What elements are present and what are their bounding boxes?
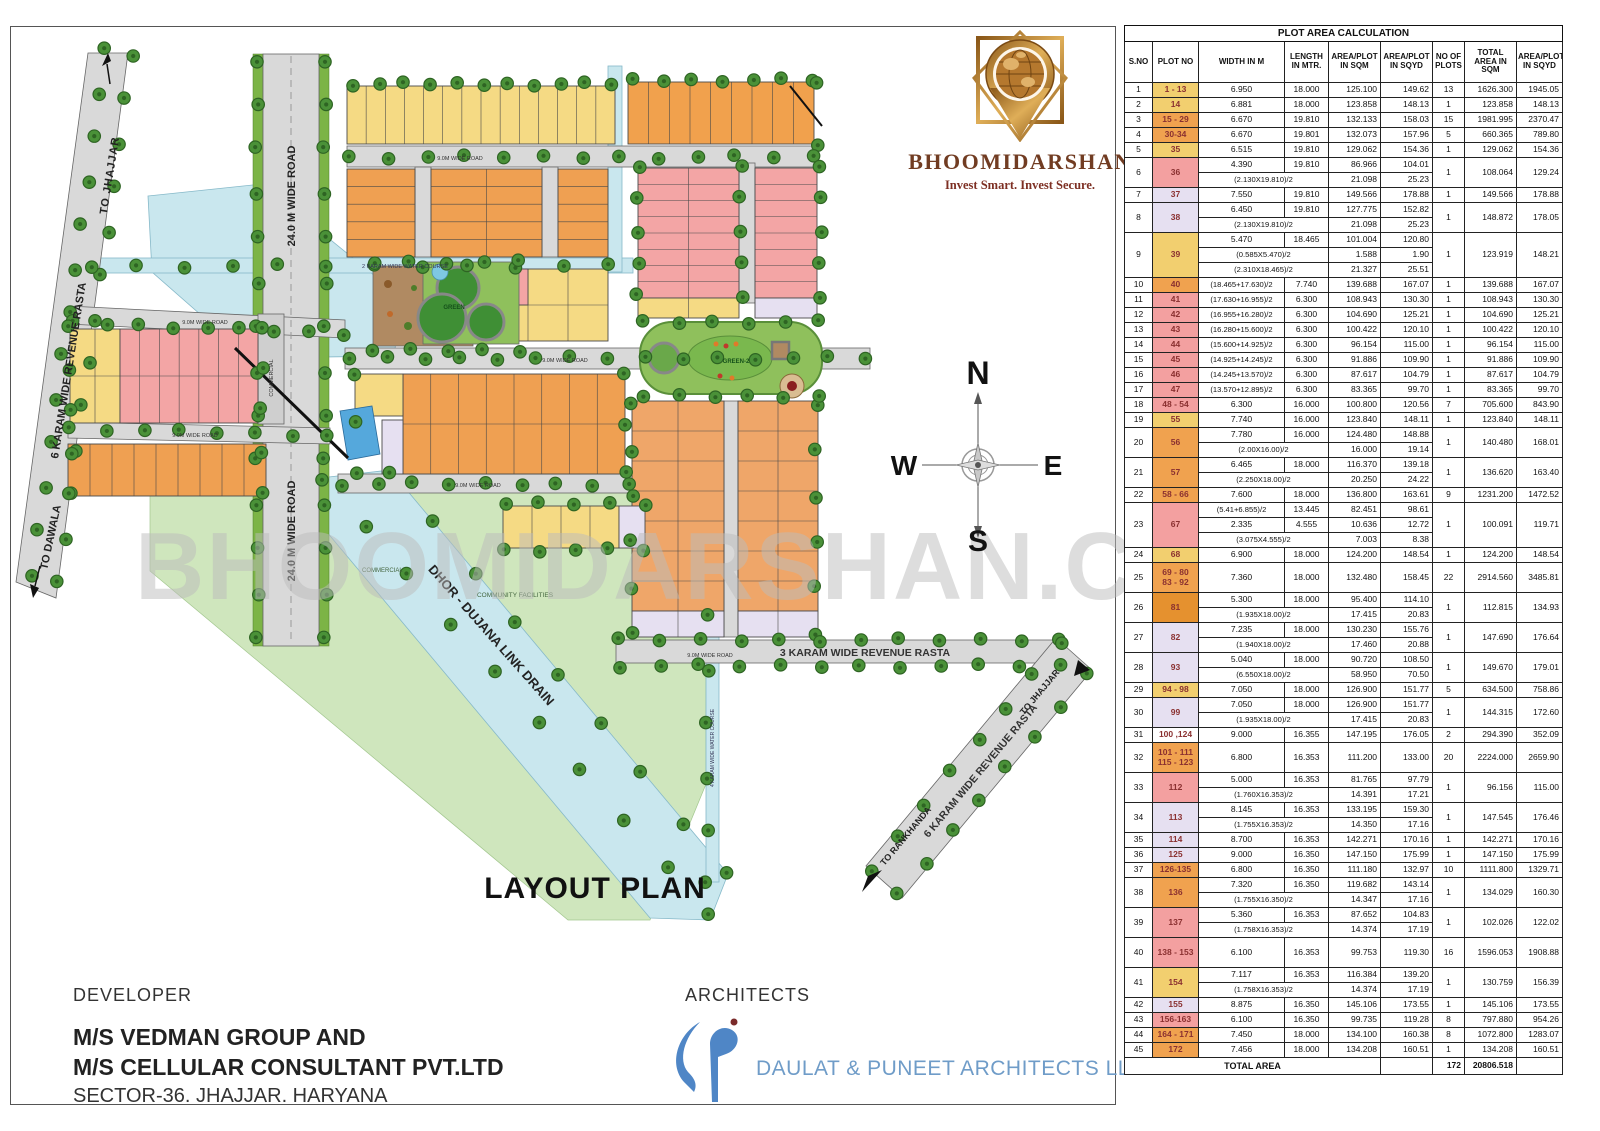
total-area-sqm-cell: 140.480 (1465, 428, 1517, 458)
width-formula-cell: (1.940X18.00)/2 (1199, 638, 1329, 653)
length-cell: 19.810 (1285, 143, 1329, 158)
total-area-sqyd-cell: 129.24 (1517, 158, 1563, 188)
total-area-sqm-cell: 142.271 (1465, 833, 1517, 848)
no-of-plots-cell: 1 (1433, 413, 1465, 428)
table-row: 391375.36016.35387.652104.831102.026122.… (1125, 908, 1563, 923)
total-area-sqyd-cell: 134.93 (1517, 593, 1563, 623)
area-sqyd-cell: 159.30 (1381, 803, 1433, 818)
area-sqyd-cell: 99.70 (1381, 383, 1433, 398)
no-of-plots-cell: 1 (1433, 323, 1465, 338)
width-cell: 8.875 (1199, 998, 1285, 1013)
table-row: 315 - 296.67019.810132.133158.03151981.9… (1125, 113, 1563, 128)
area-sqm-cell: 100.422 (1329, 323, 1381, 338)
total-area-sqm-cell: 136.620 (1465, 458, 1517, 488)
area-sqyd-cell: 109.90 (1381, 353, 1433, 368)
no-of-plots-cell: 1 (1433, 278, 1465, 293)
compass-rose: N S W E (888, 352, 1068, 552)
no-of-plots-cell: 2 (1433, 728, 1465, 743)
plot-no-cell: 155 (1153, 998, 1199, 1013)
sno-cell: 13 (1125, 323, 1153, 338)
table-row: 1747(13.570+12.895)/26.30083.36599.70183… (1125, 383, 1563, 398)
total-area-sqyd-cell: 176.46 (1517, 803, 1563, 833)
column-header: LENGTH IN MTR. (1285, 42, 1329, 83)
table-row: 21576.46518.000116.370139.181136.620163.… (1125, 458, 1563, 473)
total-area-sqm-cell: 129.062 (1465, 143, 1517, 158)
plot-no-cell: 156-163 (1153, 1013, 1199, 1028)
label-green1: GREEN (443, 305, 464, 311)
table-row: 28935.04018.00090.720108.501149.670179.0… (1125, 653, 1563, 668)
table-row: 37126-1356.80016.350111.180132.97101111.… (1125, 863, 1563, 878)
area-sqyd-cell: 163.61 (1381, 488, 1433, 503)
area-sqm-cell: 21.327 (1329, 263, 1381, 278)
total-area-sqm-cell: 124.200 (1465, 548, 1517, 563)
length-cell: 18.000 (1285, 698, 1329, 713)
plot-no-cell: 14 (1153, 98, 1199, 113)
area-sqyd-cell: 70.50 (1381, 668, 1433, 683)
area-sqyd-cell: 24.22 (1381, 473, 1433, 488)
no-of-plots-cell: 1 (1433, 803, 1465, 833)
total-area-sqm-cell: 797.880 (1465, 1013, 1517, 1028)
width-cell: 7.600 (1199, 488, 1285, 503)
brand-name: BHOOMIDARSHAN (900, 149, 1140, 175)
width-cell: 6.100 (1199, 938, 1285, 968)
plot-no-cell: 82 (1153, 623, 1199, 653)
table-title: PLOT AREA CALCULATION (1125, 26, 1563, 42)
no-of-plots-cell: 15 (1433, 113, 1465, 128)
no-of-plots-cell: 8 (1433, 1028, 1465, 1043)
total-area-sqyd-cell: 167.07 (1517, 278, 1563, 293)
total-area-sqyd-cell: 163.40 (1517, 458, 1563, 488)
sno-cell: 41 (1125, 968, 1153, 998)
area-sqyd-cell: 167.07 (1381, 278, 1433, 293)
sno-cell: 42 (1125, 998, 1153, 1013)
area-sqm-cell: 83.365 (1329, 383, 1381, 398)
total-area-sqyd-cell: 156.39 (1517, 968, 1563, 998)
width-formula-cell: (2.250X18.00)/2 (1199, 473, 1329, 488)
sno-cell: 5 (1125, 143, 1153, 158)
plot-block (755, 298, 817, 318)
table-row: 5356.51519.810129.062154.361129.062154.3… (1125, 143, 1563, 158)
width-cell: (16.280+15.600)/2 (1199, 323, 1285, 338)
total-area-sqm-cell: 104.690 (1465, 308, 1517, 323)
total-area-sqm-cell: 2914.560 (1465, 563, 1517, 593)
label-road-9m-6: 9.0M WIDE ROAD (687, 653, 733, 659)
width-formula-cell: (1.935X18.00)/2 (1199, 713, 1329, 728)
area-sqm-cell: 20.250 (1329, 473, 1381, 488)
total-area-sqyd-cell: 130.30 (1517, 293, 1563, 308)
no-of-plots-cell: 1 (1433, 158, 1465, 188)
compass-w: W (891, 450, 918, 481)
length-cell: 16.353 (1285, 803, 1329, 818)
label-road-9m-3: 9.0M WIDE ROAD (542, 358, 588, 364)
total-area-sqm-cell: 1626.300 (1465, 83, 1517, 98)
width-cell: 6.515 (1199, 143, 1285, 158)
width-cell: 7.450 (1199, 1028, 1285, 1043)
plot-no-cell: 58 - 66 (1153, 488, 1199, 503)
no-of-plots-cell: 1 (1433, 653, 1465, 683)
plot-no-cell: 69 - 80 83 - 92 (1153, 563, 1199, 593)
plot-no-cell: 137 (1153, 908, 1199, 938)
area-sqyd-cell: 8.38 (1381, 533, 1433, 548)
no-of-plots-cell: 22 (1433, 563, 1465, 593)
area-sqm-cell: 16.000 (1329, 443, 1381, 458)
area-sqm-cell: 14.391 (1329, 788, 1381, 803)
plot-no-cell: 45 (1153, 353, 1199, 368)
width-cell: 9.000 (1199, 848, 1285, 863)
sno-cell: 10 (1125, 278, 1153, 293)
width-cell: (16.955+16.280)/2 (1199, 308, 1285, 323)
total-area-sqm-cell: 83.365 (1465, 383, 1517, 398)
no-of-plots-cell: 1 (1433, 338, 1465, 353)
width-cell: 6.900 (1199, 548, 1285, 563)
area-sqm-cell: 17.460 (1329, 638, 1381, 653)
width-cell: (5.41+6.855)/2 (1199, 503, 1285, 518)
plot-no-cell: 40 (1153, 278, 1199, 293)
sno-cell: 39 (1125, 908, 1153, 938)
area-sqyd-cell: 148.11 (1381, 413, 1433, 428)
plot-no-cell: 48 - 54 (1153, 398, 1199, 413)
label-commercial-v: COMMERCIAL (269, 359, 275, 396)
plot-no-cell: 126-135 (1153, 863, 1199, 878)
length-cell: 19.810 (1285, 113, 1329, 128)
area-sqm-cell: 95.400 (1329, 593, 1381, 608)
table-row: 44164 - 1717.45018.000134.100160.3881072… (1125, 1028, 1563, 1043)
total-area-sqyd-cell: 954.26 (1517, 1013, 1563, 1028)
plot-no-cell: 56 (1153, 428, 1199, 458)
length-cell: 6.300 (1285, 323, 1329, 338)
width-formula-cell: (3.075X4.555)/2 (1199, 533, 1329, 548)
area-sqyd-cell: 97.79 (1381, 773, 1433, 788)
sno-cell: 24 (1125, 548, 1153, 563)
area-sqm-cell: 104.690 (1329, 308, 1381, 323)
total-area-sqyd-cell: 179.01 (1517, 653, 1563, 683)
width-formula-cell: (2.00X16.00)/2 (1199, 443, 1329, 458)
no-of-plots-cell: 8 (1433, 1013, 1465, 1028)
column-header: WIDTH IN M (1199, 42, 1285, 83)
area-sqm-cell: 17.415 (1329, 608, 1381, 623)
length-cell: 18.000 (1285, 1043, 1329, 1058)
area-sqyd-cell: 120.10 (1381, 323, 1433, 338)
no-of-plots-cell: 10 (1433, 863, 1465, 878)
length-cell: 19.810 (1285, 188, 1329, 203)
area-sqyd-cell: 148.88 (1381, 428, 1433, 443)
plot-no-cell: 100 ,124 (1153, 728, 1199, 743)
area-sqm-cell: 124.200 (1329, 548, 1381, 563)
plot-no-cell: 38 (1153, 203, 1199, 233)
total-area-sqyd-cell: 2370.47 (1517, 113, 1563, 128)
area-sqyd-cell: 25.51 (1381, 263, 1433, 278)
width-cell: 8.145 (1199, 803, 1285, 818)
area-sqm-cell: 81.765 (1329, 773, 1381, 788)
total-area-sqm-cell: 149.566 (1465, 188, 1517, 203)
length-cell: 16.000 (1285, 428, 1329, 443)
area-sqyd-cell: 119.28 (1381, 1013, 1433, 1028)
plot-no-cell: 68 (1153, 548, 1199, 563)
area-sqm-cell: 126.900 (1329, 698, 1381, 713)
plot-no-cell: 46 (1153, 368, 1199, 383)
sno-cell: 16 (1125, 368, 1153, 383)
width-cell: 7.320 (1199, 878, 1285, 893)
total-area-sqyd-cell: 1329.71 (1517, 863, 1563, 878)
total-area-sqyd-cell: 120.10 (1517, 323, 1563, 338)
plot-no-cell: 101 - 111 115 - 123 (1153, 743, 1199, 773)
empty-cell (1381, 1058, 1433, 1075)
area-sqm-cell: 116.370 (1329, 458, 1381, 473)
area-sqm-cell: 7.003 (1329, 533, 1381, 548)
length-cell: 18.000 (1285, 488, 1329, 503)
no-of-plots-cell: 1 (1433, 203, 1465, 233)
plot-no-cell: 57 (1153, 458, 1199, 488)
width-cell: 7.780 (1199, 428, 1285, 443)
total-area-sqm-cell: 147.545 (1465, 803, 1517, 833)
compass-e: E (1044, 450, 1063, 481)
total-area-sqyd-cell: 160.30 (1517, 878, 1563, 908)
label-road-9m-4: 9.0M WIDE ROAD (172, 433, 218, 439)
length-cell: 16.355 (1285, 728, 1329, 743)
sno-cell: 7 (1125, 188, 1153, 203)
column-header: PLOT NO (1153, 42, 1199, 83)
area-sqyd-cell: 143.14 (1381, 878, 1433, 893)
plot-no-cell: 37 (1153, 188, 1199, 203)
plot-no-cell: 99 (1153, 698, 1199, 728)
total-area-sqyd-cell: 1908.88 (1517, 938, 1563, 968)
width-cell: 6.300 (1199, 398, 1285, 413)
area-sqm-cell: 91.886 (1329, 353, 1381, 368)
width-cell: (17.630+16.955)/2 (1199, 293, 1285, 308)
total-area-sqyd-cell: 2659.90 (1517, 743, 1563, 773)
total-area-sqyd-cell: 104.79 (1517, 368, 1563, 383)
length-cell: 16.353 (1285, 908, 1329, 923)
no-of-plots-cell: 1 (1433, 188, 1465, 203)
area-sqyd-cell: 120.80 (1381, 233, 1433, 248)
width-cell: 6.800 (1199, 863, 1285, 878)
length-cell: 16.000 (1285, 398, 1329, 413)
length-cell: 18.000 (1285, 83, 1329, 98)
length-cell: 18.465 (1285, 233, 1329, 248)
sno-cell: 6 (1125, 158, 1153, 188)
architects-block: ARCHITECTS DAULAT & PUNEET ARCHITECTS LL… (660, 985, 1148, 1106)
plot-no-cell: 35 (1153, 143, 1199, 158)
table-row: 9395.47018.465101.004120.801123.919148.2… (1125, 233, 1563, 248)
area-sqyd-cell: 158.03 (1381, 113, 1433, 128)
area-sqm-cell: 96.154 (1329, 338, 1381, 353)
table-row: 381367.32016.350119.682143.141134.029160… (1125, 878, 1563, 893)
area-sqm-cell: 145.106 (1329, 998, 1381, 1013)
table-row: 1848 - 546.30016.000100.800120.567705.60… (1125, 398, 1563, 413)
area-sqyd-cell: 178.88 (1381, 188, 1433, 203)
table-row: 2258 - 667.60018.000136.800163.6191231.2… (1125, 488, 1563, 503)
area-sqyd-cell: 173.55 (1381, 998, 1433, 1013)
no-of-plots-cell: 20 (1433, 743, 1465, 773)
table-row: 6364.39019.81086.966104.011108.064129.24 (1125, 158, 1563, 173)
area-sqm-cell: 116.384 (1329, 968, 1381, 983)
area-sqyd-cell: 155.76 (1381, 623, 1433, 638)
total-area-sqm-cell: 100.422 (1465, 323, 1517, 338)
total-area-sqm-cell: 123.840 (1465, 413, 1517, 428)
area-sqm-cell: 123.840 (1329, 413, 1381, 428)
layout-plan-sheet: { "logo": {"brand": "BHOOMIDARSHAN", "ta… (0, 0, 1600, 1131)
width-cell: (14.245+13.570)/2 (1199, 368, 1285, 383)
total-area-sqm-cell: 705.600 (1465, 398, 1517, 413)
area-sqyd-cell: 151.77 (1381, 683, 1433, 698)
table-row: 351148.70016.353142.271170.161142.271170… (1125, 833, 1563, 848)
table-row: 421558.87516.350145.106173.551145.106173… (1125, 998, 1563, 1013)
no-of-plots-cell: 1 (1433, 698, 1465, 728)
total-label-cell: TOTAL AREA (1125, 1058, 1381, 1075)
sno-cell: 43 (1125, 1013, 1153, 1028)
length-cell: 16.350 (1285, 848, 1329, 863)
sno-cell: 32 (1125, 743, 1153, 773)
area-sqm-cell: 147.150 (1329, 848, 1381, 863)
road-mini-2 (542, 167, 558, 257)
length-cell: 6.300 (1285, 293, 1329, 308)
sno-cell: 14 (1125, 338, 1153, 353)
table-row: 331125.00016.35381.76597.79196.156115.00 (1125, 773, 1563, 788)
sno-cell: 34 (1125, 803, 1153, 833)
plot-no-cell: 172 (1153, 1043, 1199, 1058)
no-of-plots-cell: 1 (1433, 1043, 1465, 1058)
width-formula-cell: (0.585X5.470)/2 (1199, 248, 1329, 263)
width-cell: (13.570+12.895)/2 (1199, 383, 1285, 398)
area-sqyd-cell: 17.16 (1381, 818, 1433, 833)
length-cell: 16.350 (1285, 863, 1329, 878)
no-of-plots-cell: 7 (1433, 398, 1465, 413)
table-row: 411547.11716.353116.384139.201130.759156… (1125, 968, 1563, 983)
length-cell: 13.445 (1285, 503, 1329, 518)
sno-cell: 23 (1125, 503, 1153, 548)
table-row: 30997.05018.000126.900151.771144.315172.… (1125, 698, 1563, 713)
compass-n: N (966, 355, 989, 391)
area-sqyd-cell: 17.19 (1381, 983, 1433, 998)
table-row: 341138.14516.353133.195159.301147.545176… (1125, 803, 1563, 818)
total-area-sqm-cell: 149.670 (1465, 653, 1517, 683)
label-water-course-2k: 2 KARAM WIDE WATER COURSE (362, 264, 448, 270)
area-sqyd-cell: 148.13 (1381, 98, 1433, 113)
total-area-sqm-cell: 130.759 (1465, 968, 1517, 998)
label-green2: GREEN-2 (723, 359, 750, 365)
length-cell: 18.000 (1285, 623, 1329, 638)
area-sqm-cell: 14.350 (1329, 818, 1381, 833)
sno-cell: 38 (1125, 878, 1153, 908)
no-of-plots-cell: 1 (1433, 98, 1465, 113)
total-area-sqyd-cell: 172.60 (1517, 698, 1563, 728)
area-sqyd-cell: 170.16 (1381, 833, 1433, 848)
sno-cell: 21 (1125, 458, 1153, 488)
sno-cell: 29 (1125, 683, 1153, 698)
area-sqm-cell: 17.415 (1329, 713, 1381, 728)
area-sqm-cell: 111.180 (1329, 863, 1381, 878)
width-cell: 5.000 (1199, 773, 1285, 788)
area-sqyd-cell: 157.96 (1381, 128, 1433, 143)
plot-no-cell: 114 (1153, 833, 1199, 848)
brand-emblem-icon (900, 30, 1140, 142)
width-cell: (14.925+14.245)/2 (1199, 353, 1285, 368)
total-area-sqyd-cell: 178.88 (1517, 188, 1563, 203)
area-sqm-cell: 119.682 (1329, 878, 1381, 893)
total-area-sqyd-cell: 789.80 (1517, 128, 1563, 143)
total-area-sqm-cell: 145.106 (1465, 998, 1517, 1013)
plot-no-cell: 113 (1153, 803, 1199, 833)
sno-cell: 44 (1125, 1028, 1153, 1043)
plot-area-calculation-table: PLOT AREA CALCULATIONS.NOPLOT NOWIDTH IN… (1124, 25, 1563, 1075)
area-sqm-cell: 14.374 (1329, 923, 1381, 938)
area-sqyd-cell: 148.54 (1381, 548, 1433, 563)
no-of-plots-cell: 1 (1433, 308, 1465, 323)
plot-block (347, 169, 415, 257)
total-area-sqm-cell: 144.315 (1465, 698, 1517, 728)
total-area-sqm-cell: 100.091 (1465, 503, 1517, 548)
area-sqyd-cell: 17.19 (1381, 923, 1433, 938)
total-area-sqyd-cell: 115.00 (1517, 773, 1563, 803)
width-cell: 6.800 (1199, 743, 1285, 773)
no-of-plots-cell: 1 (1433, 848, 1465, 863)
sno-cell: 8 (1125, 203, 1153, 233)
compass-s: S (968, 525, 988, 552)
no-of-plots-cell: 5 (1433, 128, 1465, 143)
table-row: 1545(14.925+14.245)/26.30091.886109.9019… (1125, 353, 1563, 368)
length-cell: 18.000 (1285, 683, 1329, 698)
width-formula-cell: (2.130X19.810)/2 (1199, 218, 1329, 233)
table-row: 451727.45618.000134.208160.511134.208160… (1125, 1043, 1563, 1058)
area-sqyd-cell: 115.00 (1381, 338, 1433, 353)
sno-cell: 40 (1125, 938, 1153, 968)
no-of-plots-cell: 1 (1433, 908, 1465, 938)
column-header: AREA/PLOT IN SQM (1329, 42, 1381, 83)
area-sqm-cell: 132.133 (1329, 113, 1381, 128)
table-row: 2146.88118.000123.858148.131123.858148.1… (1125, 98, 1563, 113)
width-cell: 9.000 (1199, 728, 1285, 743)
area-sqyd-cell: 176.05 (1381, 728, 1433, 743)
total-area-sqm-cell: 108.064 (1465, 158, 1517, 188)
no-of-plots-cell: 1 (1433, 878, 1465, 908)
total-area-sqm-cell: 134.029 (1465, 878, 1517, 908)
area-sqyd-cell: 17.21 (1381, 788, 1433, 803)
table-row: 40138 - 1536.10016.35399.753119.30161596… (1125, 938, 1563, 968)
total-plots-cell: 172 (1433, 1058, 1465, 1075)
table-row: 1141(17.630+16.955)/26.300108.943130.301… (1125, 293, 1563, 308)
table-row: 8386.45019.810127.775152.821148.872178.0… (1125, 203, 1563, 218)
empty-cell (1517, 1058, 1563, 1075)
label-road-24m-1: 24.0 M WIDE ROAD (286, 146, 298, 247)
area-sqm-cell: 100.800 (1329, 398, 1381, 413)
area-sqyd-cell: 17.16 (1381, 893, 1433, 908)
no-of-plots-cell: 1 (1433, 548, 1465, 563)
length-cell: 6.300 (1285, 383, 1329, 398)
area-sqm-cell: 126.900 (1329, 683, 1381, 698)
width-cell: 7.050 (1199, 698, 1285, 713)
sno-cell: 30 (1125, 698, 1153, 728)
total-area-sqyd-cell: 148.13 (1517, 98, 1563, 113)
area-sqm-cell: 87.617 (1329, 368, 1381, 383)
sno-cell: 20 (1125, 428, 1153, 458)
sno-cell: 12 (1125, 308, 1153, 323)
total-area-sqm-cell: 123.919 (1465, 233, 1517, 278)
width-cell: 6.881 (1199, 98, 1285, 113)
table-row: 430-346.67019.801132.073157.965660.36578… (1125, 128, 1563, 143)
column-header: S.NO (1125, 42, 1153, 83)
plot-no-cell: 42 (1153, 308, 1199, 323)
plot-no-cell: 81 (1153, 593, 1199, 623)
sno-cell: 37 (1125, 863, 1153, 878)
length-cell: 6.300 (1285, 338, 1329, 353)
sno-cell: 1 (1125, 83, 1153, 98)
sno-cell: 35 (1125, 833, 1153, 848)
table-row: 1646(14.245+13.570)/26.30087.617104.7918… (1125, 368, 1563, 383)
length-cell: 19.810 (1285, 203, 1329, 218)
area-sqyd-cell: 158.45 (1381, 563, 1433, 593)
no-of-plots-cell: 1 (1433, 458, 1465, 488)
area-sqyd-cell: 175.99 (1381, 848, 1433, 863)
